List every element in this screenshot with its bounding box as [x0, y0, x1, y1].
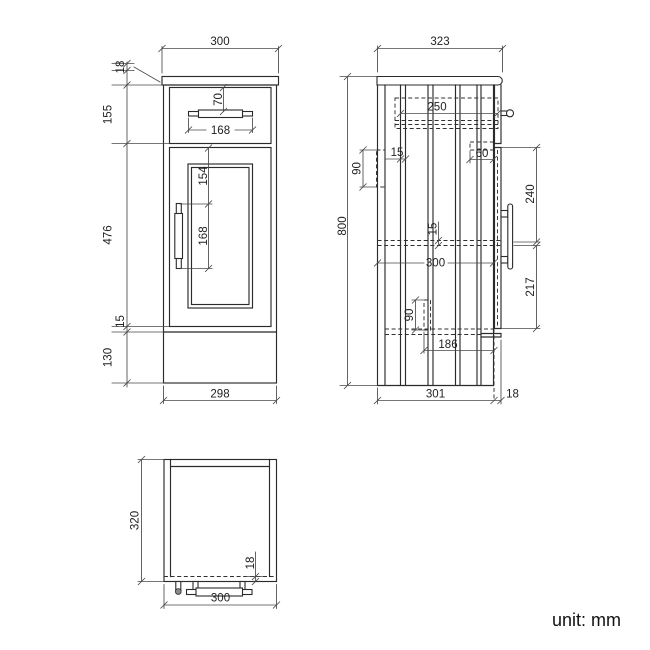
- side-door-handle-stem-top: [501, 211, 508, 218]
- dim-side-bottom-panel-thickness: 15: [428, 223, 440, 236]
- dim-side-height-total: 800: [337, 216, 349, 235]
- dim-front-width-top: 300: [210, 36, 229, 48]
- dim-side-depth-top: 323: [430, 36, 449, 48]
- dim-front-worktop-thickness: 18: [115, 61, 127, 74]
- side-door-handle-stem-bottom: [501, 257, 508, 264]
- plan-cabinet-outline: [164, 460, 277, 597]
- front-cabinet-outline: [162, 77, 279, 384]
- front-drawer-handle-grip: [199, 110, 243, 118]
- side-view: 323 800 250 90 15 60 240: [337, 36, 540, 404]
- side-drawer-knob: [507, 110, 514, 117]
- dim-side-back-rail-height: 90: [352, 162, 364, 175]
- front-dimensions: 300 18 155 476 15 130 70 168 154 168: [103, 36, 282, 404]
- dim-side-runner-setback: 60: [476, 148, 489, 160]
- dim-side-door-thickness: 18: [506, 389, 519, 401]
- technical-drawing: 300 18 155 476 15 130 70 168 154 168: [0, 0, 650, 650]
- dim-side-runner-length: 186: [438, 339, 457, 351]
- dim-side-back-panel-thickness: 15: [391, 147, 404, 159]
- dim-side-lower-rail-height: 90: [404, 309, 416, 322]
- front-door-handle-grip: [175, 214, 183, 259]
- dim-front-door-height: 476: [103, 225, 115, 244]
- dim-side-drawer-box-depth: 250: [427, 102, 446, 114]
- plan-dimensions: 320 18 300: [130, 456, 280, 608]
- plan-view: 320 18 300: [130, 456, 280, 608]
- dim-front-drawer-handle-offset: 70: [213, 93, 225, 106]
- drawing-page: 300 18 155 476 15 130 70 168 154 168: [0, 0, 650, 650]
- dim-front-drawer-height: 155: [103, 105, 115, 124]
- dim-plan-front-thickness: 18: [245, 557, 257, 570]
- front-door: [170, 148, 272, 327]
- dim-front-drawer-handle-length: 168: [211, 125, 230, 137]
- plan-hinge-pin-cap: [175, 589, 181, 595]
- plan-carcass: [164, 460, 277, 582]
- side-drawer-bottom-hidden: [395, 121, 498, 125]
- front-plinth: [164, 332, 277, 383]
- unit-label: unit: mm: [552, 610, 621, 630]
- dim-side-handle-top-offset: 240: [525, 184, 537, 203]
- dim-front-bottom-gap: 15: [115, 315, 127, 328]
- side-worktop: [377, 77, 502, 86]
- front-worktop: [162, 77, 279, 86]
- side-lower-rail-hidden: [424, 300, 431, 330]
- dim-plan-width: 300: [211, 593, 230, 605]
- dim-plan-depth: 320: [130, 511, 142, 530]
- front-view: 300 18 155 476 15 130 70 168 154 168: [103, 36, 282, 404]
- dim-front-door-handle-length: 168: [198, 226, 210, 245]
- dim-side-carcass-depth: 301: [426, 389, 445, 401]
- dim-side-handle-bottom-offset: 217: [525, 277, 537, 296]
- dim-side-internal-depth: 300: [426, 258, 445, 270]
- side-door-handle-bar: [508, 204, 513, 269]
- dim-front-width-bottom: 298: [210, 389, 229, 401]
- dim-front-door-handle-offset: 154: [198, 166, 210, 186]
- dim-front-plinth-height: 130: [103, 348, 115, 367]
